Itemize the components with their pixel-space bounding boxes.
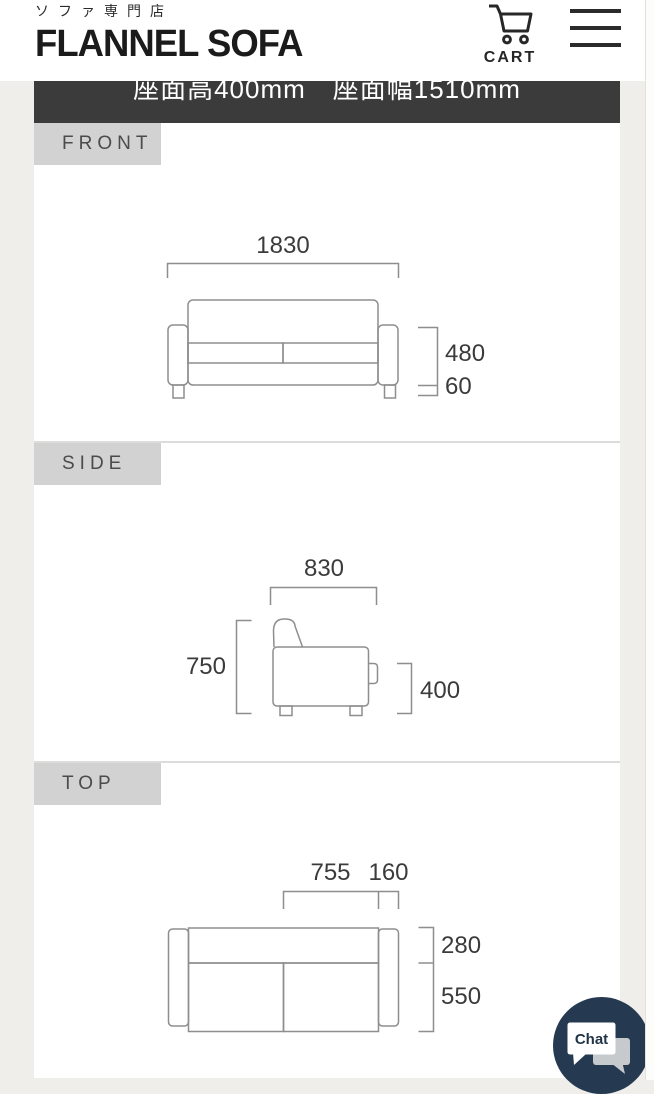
section-side-view: SIDE 830 750 400 bbox=[34, 441, 620, 761]
side-depth-dimension: 830 bbox=[304, 555, 344, 582]
section-top-view: TOP 755 160 280 550 bbox=[34, 761, 620, 1078]
menu-hamburger-icon[interactable] bbox=[570, 9, 621, 48]
hamburger-bar bbox=[570, 9, 621, 13]
site-header: ソファ専門店 FLANNEL SOFA CART bbox=[0, 0, 645, 81]
chat-bubbles-icon: Chat bbox=[553, 997, 650, 1094]
sofa-side-left-foot bbox=[280, 706, 292, 716]
sofa-top-left-seat bbox=[189, 963, 284, 1032]
dimension-sections: FRONT 1830 480 60 SIDE 830 bbox=[34, 123, 620, 1078]
sofa-side-body bbox=[273, 647, 369, 706]
front-width-bracket bbox=[168, 264, 399, 279]
top-back-depth-dimension: 280 bbox=[441, 932, 481, 959]
top-seat-depth-dimension: 550 bbox=[441, 983, 481, 1010]
spec-bar-text: 座面高400mm 座面幅1510mm bbox=[34, 81, 620, 106]
spec-bar: 座面高400mm 座面幅1510mm bbox=[34, 81, 620, 123]
sofa-front-right-foot bbox=[385, 385, 396, 398]
front-width-dimension: 1830 bbox=[256, 232, 309, 259]
top-depth-bracket bbox=[419, 928, 434, 1032]
side-seat-height-bracket bbox=[397, 664, 412, 714]
chat-button[interactable]: Chat bbox=[553, 997, 650, 1094]
front-leg-height-dimension: 60 bbox=[445, 373, 472, 400]
brand-tagline: ソファ専門店 bbox=[35, 1, 314, 21]
top-view-label: TOP bbox=[34, 763, 161, 805]
sofa-front-right-arm bbox=[378, 325, 398, 385]
hamburger-bar bbox=[570, 43, 621, 47]
top-width-bracket bbox=[284, 892, 399, 910]
side-view-diagram: 830 750 400 bbox=[34, 443, 620, 763]
top-seat-width-dimension: 755 bbox=[310, 859, 350, 886]
front-height-bracket bbox=[418, 328, 438, 396]
cart-label: CART bbox=[482, 49, 538, 67]
sofa-top-backrest bbox=[189, 928, 379, 963]
front-view-diagram: 1830 480 60 bbox=[34, 123, 620, 441]
cart-button[interactable]: CART bbox=[482, 3, 538, 67]
front-view-label: FRONT bbox=[34, 123, 161, 165]
brand-logo: FLANNEL SOFA bbox=[35, 23, 302, 66]
side-view-label: SIDE bbox=[34, 443, 161, 485]
side-seat-height-dimension: 400 bbox=[420, 677, 460, 704]
sofa-top-left-arm bbox=[169, 929, 189, 1026]
sofa-front-left-cushion bbox=[188, 343, 283, 363]
sofa-top-right-arm bbox=[379, 929, 399, 1026]
sofa-front-right-cushion bbox=[283, 343, 378, 363]
brand-logo-link[interactable]: ソファ専門店 FLANNEL SOFA bbox=[35, 1, 314, 66]
section-front-view: FRONT 1830 480 60 bbox=[34, 123, 620, 441]
sofa-side-backrest bbox=[274, 619, 303, 647]
front-body-height-dimension: 480 bbox=[445, 340, 485, 367]
chat-label: Chat bbox=[575, 1031, 608, 1048]
sofa-front-left-foot bbox=[173, 385, 184, 398]
top-view-diagram: 755 160 280 550 bbox=[34, 763, 620, 1080]
cart-icon bbox=[485, 3, 535, 45]
side-height-dimension: 750 bbox=[186, 653, 226, 680]
sofa-side-right-foot bbox=[350, 706, 362, 716]
scrollbar-track[interactable] bbox=[645, 0, 654, 1080]
side-height-bracket bbox=[237, 621, 252, 714]
hamburger-bar bbox=[570, 26, 621, 30]
top-arm-width-dimension: 160 bbox=[368, 859, 408, 886]
sofa-front-left-arm bbox=[168, 325, 188, 385]
sofa-top-right-seat bbox=[284, 963, 379, 1032]
side-depth-bracket bbox=[271, 588, 377, 606]
sofa-side-seat-edge bbox=[369, 664, 378, 684]
